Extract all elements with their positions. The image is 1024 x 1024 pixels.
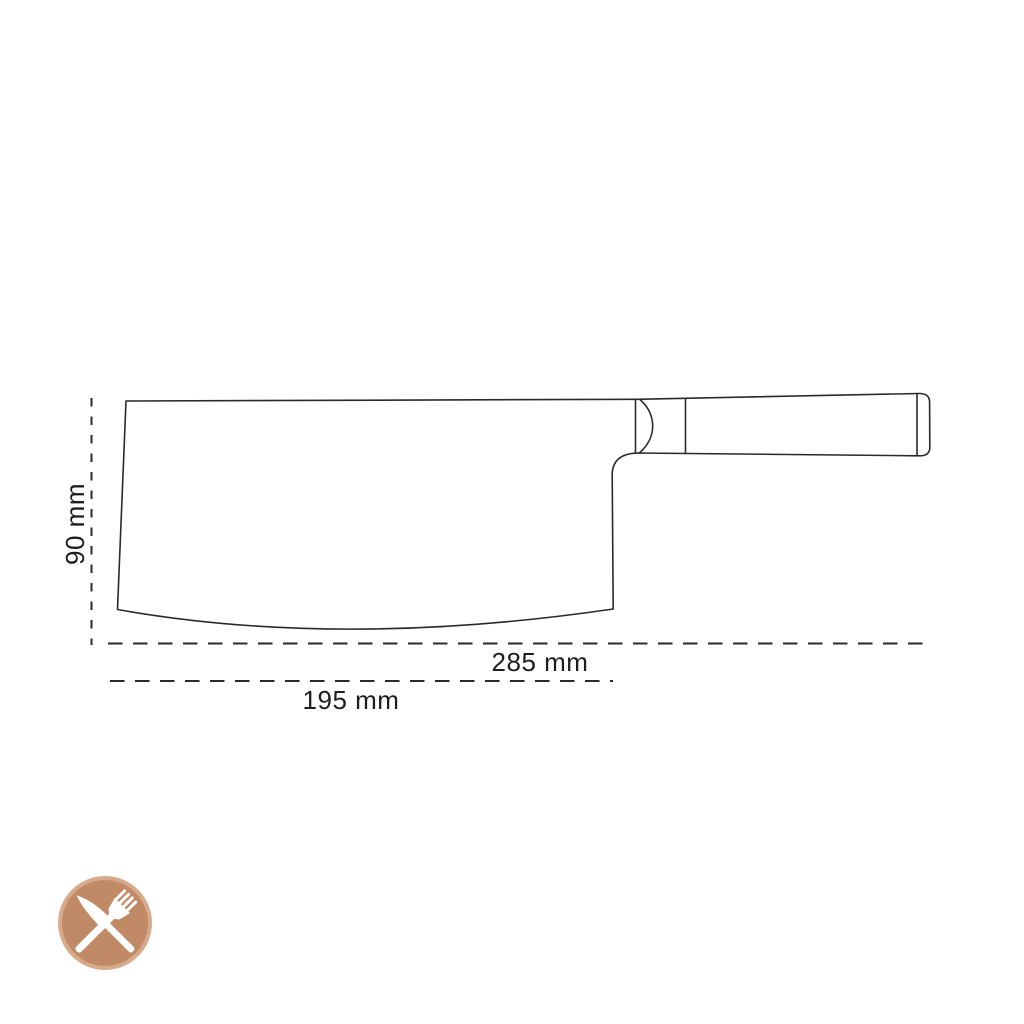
total-length-dimension-label: 285 mm [492, 647, 589, 677]
blade-length-dimension-label: 195 mm [303, 685, 400, 715]
bolster-curve [640, 400, 653, 453]
cleaver-dimension-drawing: 90 mm 285 mm 195 mm [0, 0, 1024, 1024]
product-dimension-diagram: 90 mm 285 mm 195 mm [0, 0, 1024, 1024]
dimension-lines-group [92, 398, 929, 681]
cleaver-outline-group [118, 393, 930, 629]
height-dimension-label: 90 mm [60, 483, 90, 565]
brand-logo [58, 876, 152, 970]
cleaver-silhouette [118, 393, 930, 629]
